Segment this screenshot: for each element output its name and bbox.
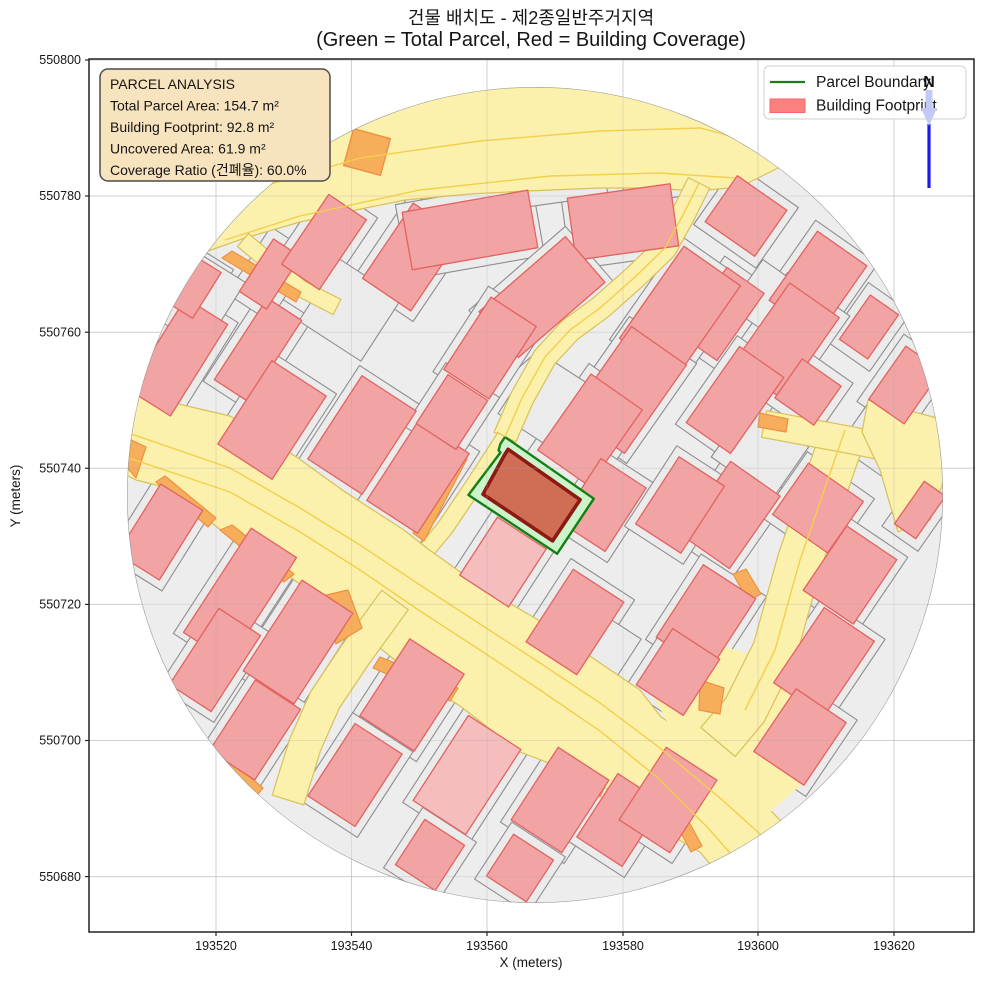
svg-text:550700: 550700 [39, 734, 81, 748]
svg-text:550720: 550720 [39, 598, 81, 612]
svg-text:Building Footprint: 92.8 m²: Building Footprint: 92.8 m² [110, 119, 275, 135]
svg-text:193560: 193560 [466, 939, 508, 953]
svg-text:193520: 193520 [195, 939, 237, 953]
svg-text:Building Footprint: Building Footprint [816, 98, 937, 115]
svg-text:550740: 550740 [39, 462, 81, 476]
svg-text:(Green = Total Parcel, Red = B: (Green = Total Parcel, Red = Building Co… [316, 29, 746, 51]
svg-text:550680: 550680 [39, 870, 81, 884]
svg-text:Parcel Boundary: Parcel Boundary [816, 74, 931, 91]
svg-text:Y (meters): Y (meters) [8, 465, 23, 528]
svg-text:Total Parcel Area: 154.7 m²: Total Parcel Area: 154.7 m² [110, 98, 279, 114]
svg-text:193600: 193600 [737, 939, 779, 953]
svg-text:193540: 193540 [331, 939, 373, 953]
svg-text:550800: 550800 [39, 53, 81, 67]
svg-text:PARCEL ANALYSIS: PARCEL ANALYSIS [110, 76, 235, 92]
svg-text:Coverage Ratio (건폐율): 60.0%: Coverage Ratio (건폐율): 60.0% [110, 162, 307, 178]
svg-text:550780: 550780 [39, 189, 81, 203]
svg-text:X (meters): X (meters) [499, 955, 562, 970]
svg-text:550760: 550760 [39, 325, 81, 339]
svg-text:건물 배치도 - 제2종일반주거지역: 건물 배치도 - 제2종일반주거지역 [408, 8, 654, 28]
svg-text:N: N [923, 74, 935, 91]
svg-text:193580: 193580 [602, 939, 644, 953]
svg-text:Uncovered Area: 61.9 m²: Uncovered Area: 61.9 m² [110, 141, 266, 157]
svg-text:193620: 193620 [873, 939, 915, 953]
